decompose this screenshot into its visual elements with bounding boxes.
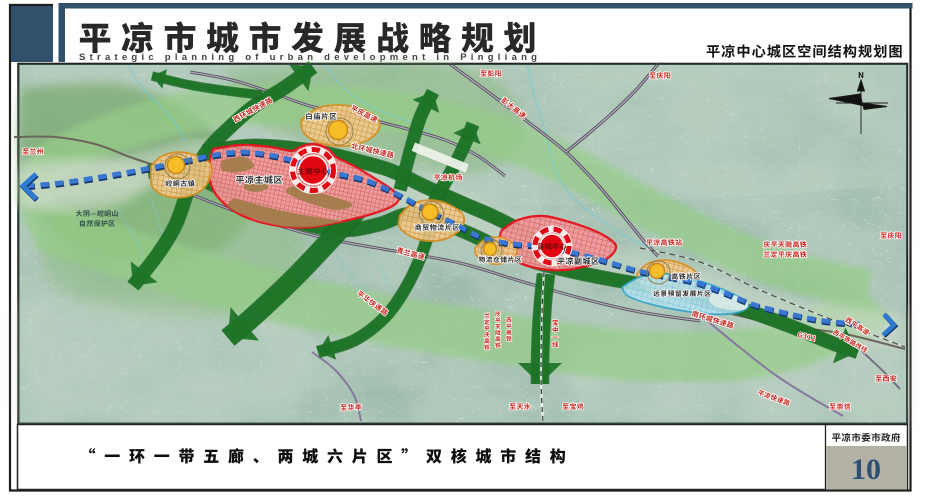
svg-text:10: 10	[851, 453, 881, 486]
svg-text:Strategic planning of urban de: Strategic planning of urban development …	[79, 52, 541, 63]
